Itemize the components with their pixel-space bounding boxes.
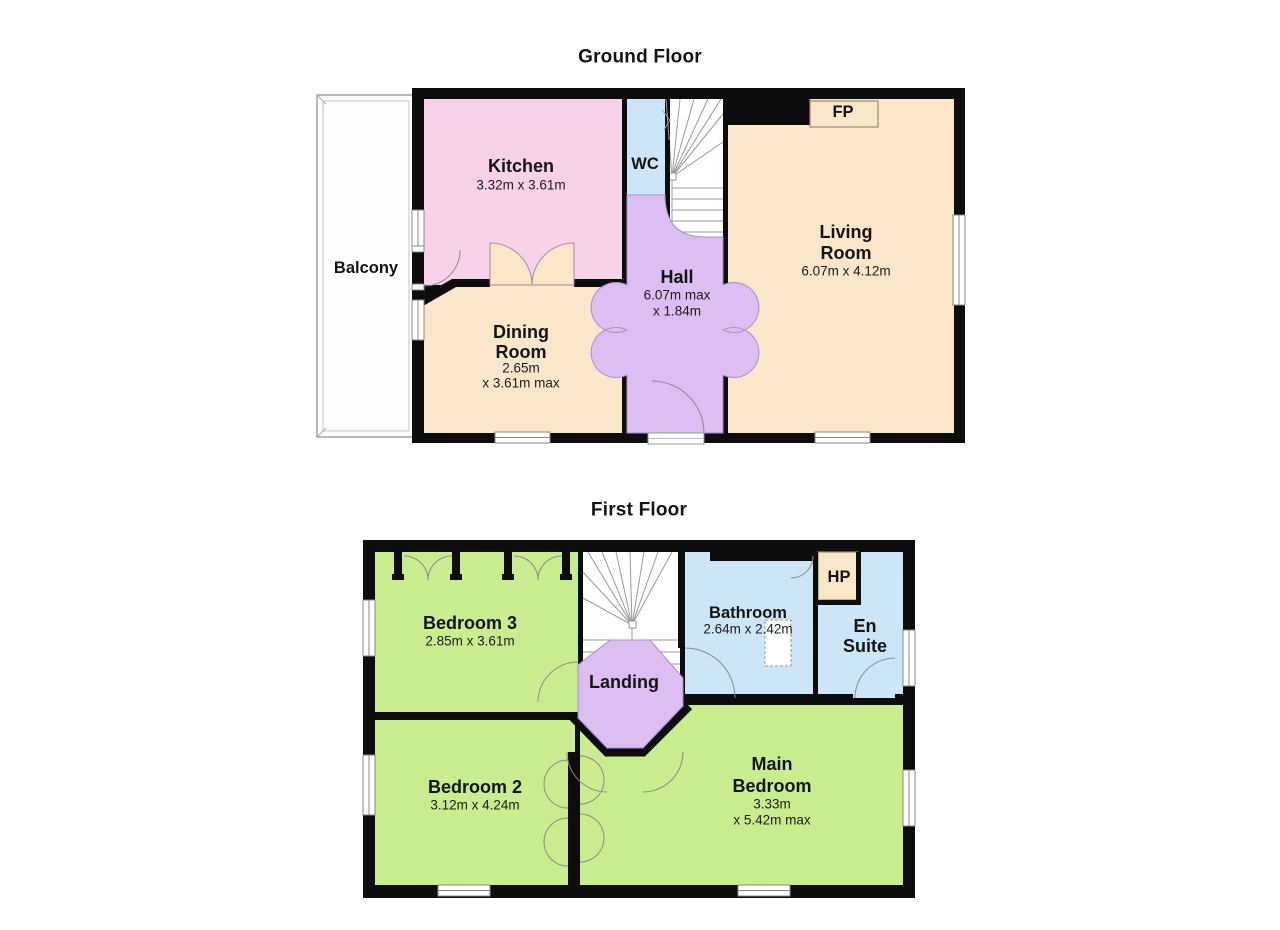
chimney-breast — [728, 99, 810, 125]
ground-stairs — [662, 99, 723, 239]
hall-label: Hall — [660, 268, 693, 286]
bedroom2-dims: 3.12m x 4.24m — [430, 798, 519, 812]
fireplace-label: FP — [832, 104, 853, 121]
dining-room-label-2: Room — [496, 343, 547, 361]
wc-label: WC — [631, 156, 659, 173]
wc-room — [627, 99, 665, 195]
ensuite-label-1: En — [853, 617, 876, 635]
bedroom3-dims: 2.85m x 3.61m — [425, 634, 514, 648]
living-room-label-1: Living — [820, 223, 873, 241]
floorplan-page: Ground Floor Balcony Kitchen 3.32m x 3.6… — [0, 0, 1280, 930]
living-room-dims: 6.07m x 4.12m — [801, 264, 890, 278]
ensuite-label-2: Suite — [843, 637, 887, 655]
bedroom2-label: Bedroom 2 — [428, 778, 522, 796]
main-bedroom-dims-2: x 5.42m max — [733, 813, 810, 827]
main-bedroom-label-2: Bedroom — [732, 777, 811, 795]
bedroom3-label: Bedroom 3 — [423, 614, 517, 632]
first-floor-plan — [300, 530, 980, 910]
kitchen-label: Kitchen — [488, 157, 554, 175]
bathroom-dims: 2.64m x 2.42m — [703, 622, 792, 636]
main-bedroom-dims-1: 3.33m — [753, 797, 791, 811]
dining-room-dims-2: x 3.61m max — [482, 376, 559, 390]
first-floor-title: First Floor — [591, 501, 687, 520]
balcony-label: Balcony — [334, 260, 398, 277]
kitchen-dims: 3.32m x 3.61m — [476, 178, 565, 192]
living-room-label-2: Room — [821, 244, 872, 262]
dining-room-label-1: Dining — [493, 323, 549, 341]
landing-label: Landing — [589, 673, 659, 691]
bathroom-label: Bathroom — [709, 605, 787, 622]
front-door — [648, 433, 704, 444]
heating-cupboard-label: HP — [828, 569, 851, 586]
main-bedroom-label-1: Main — [751, 755, 792, 773]
ground-floor-title: Ground Floor — [578, 48, 702, 67]
hall-dims-1: 6.07m max — [644, 288, 711, 302]
dining-room-dims-1: 2.65m — [502, 361, 540, 375]
hall-dims-2: x 1.84m — [653, 304, 701, 318]
